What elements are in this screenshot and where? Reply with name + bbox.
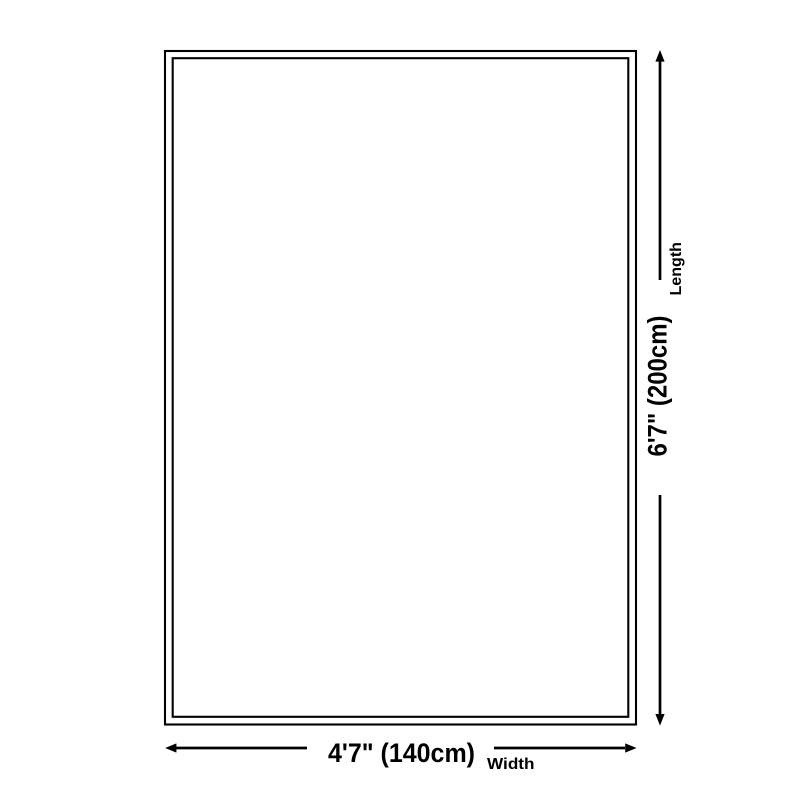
svg-text:Width: Width (487, 756, 535, 773)
svg-text:Length: Length (668, 242, 685, 296)
svg-text:4'7" (140cm): 4'7" (140cm) (328, 738, 475, 768)
svg-text:6'7" (200cm): 6'7" (200cm) (643, 316, 673, 457)
